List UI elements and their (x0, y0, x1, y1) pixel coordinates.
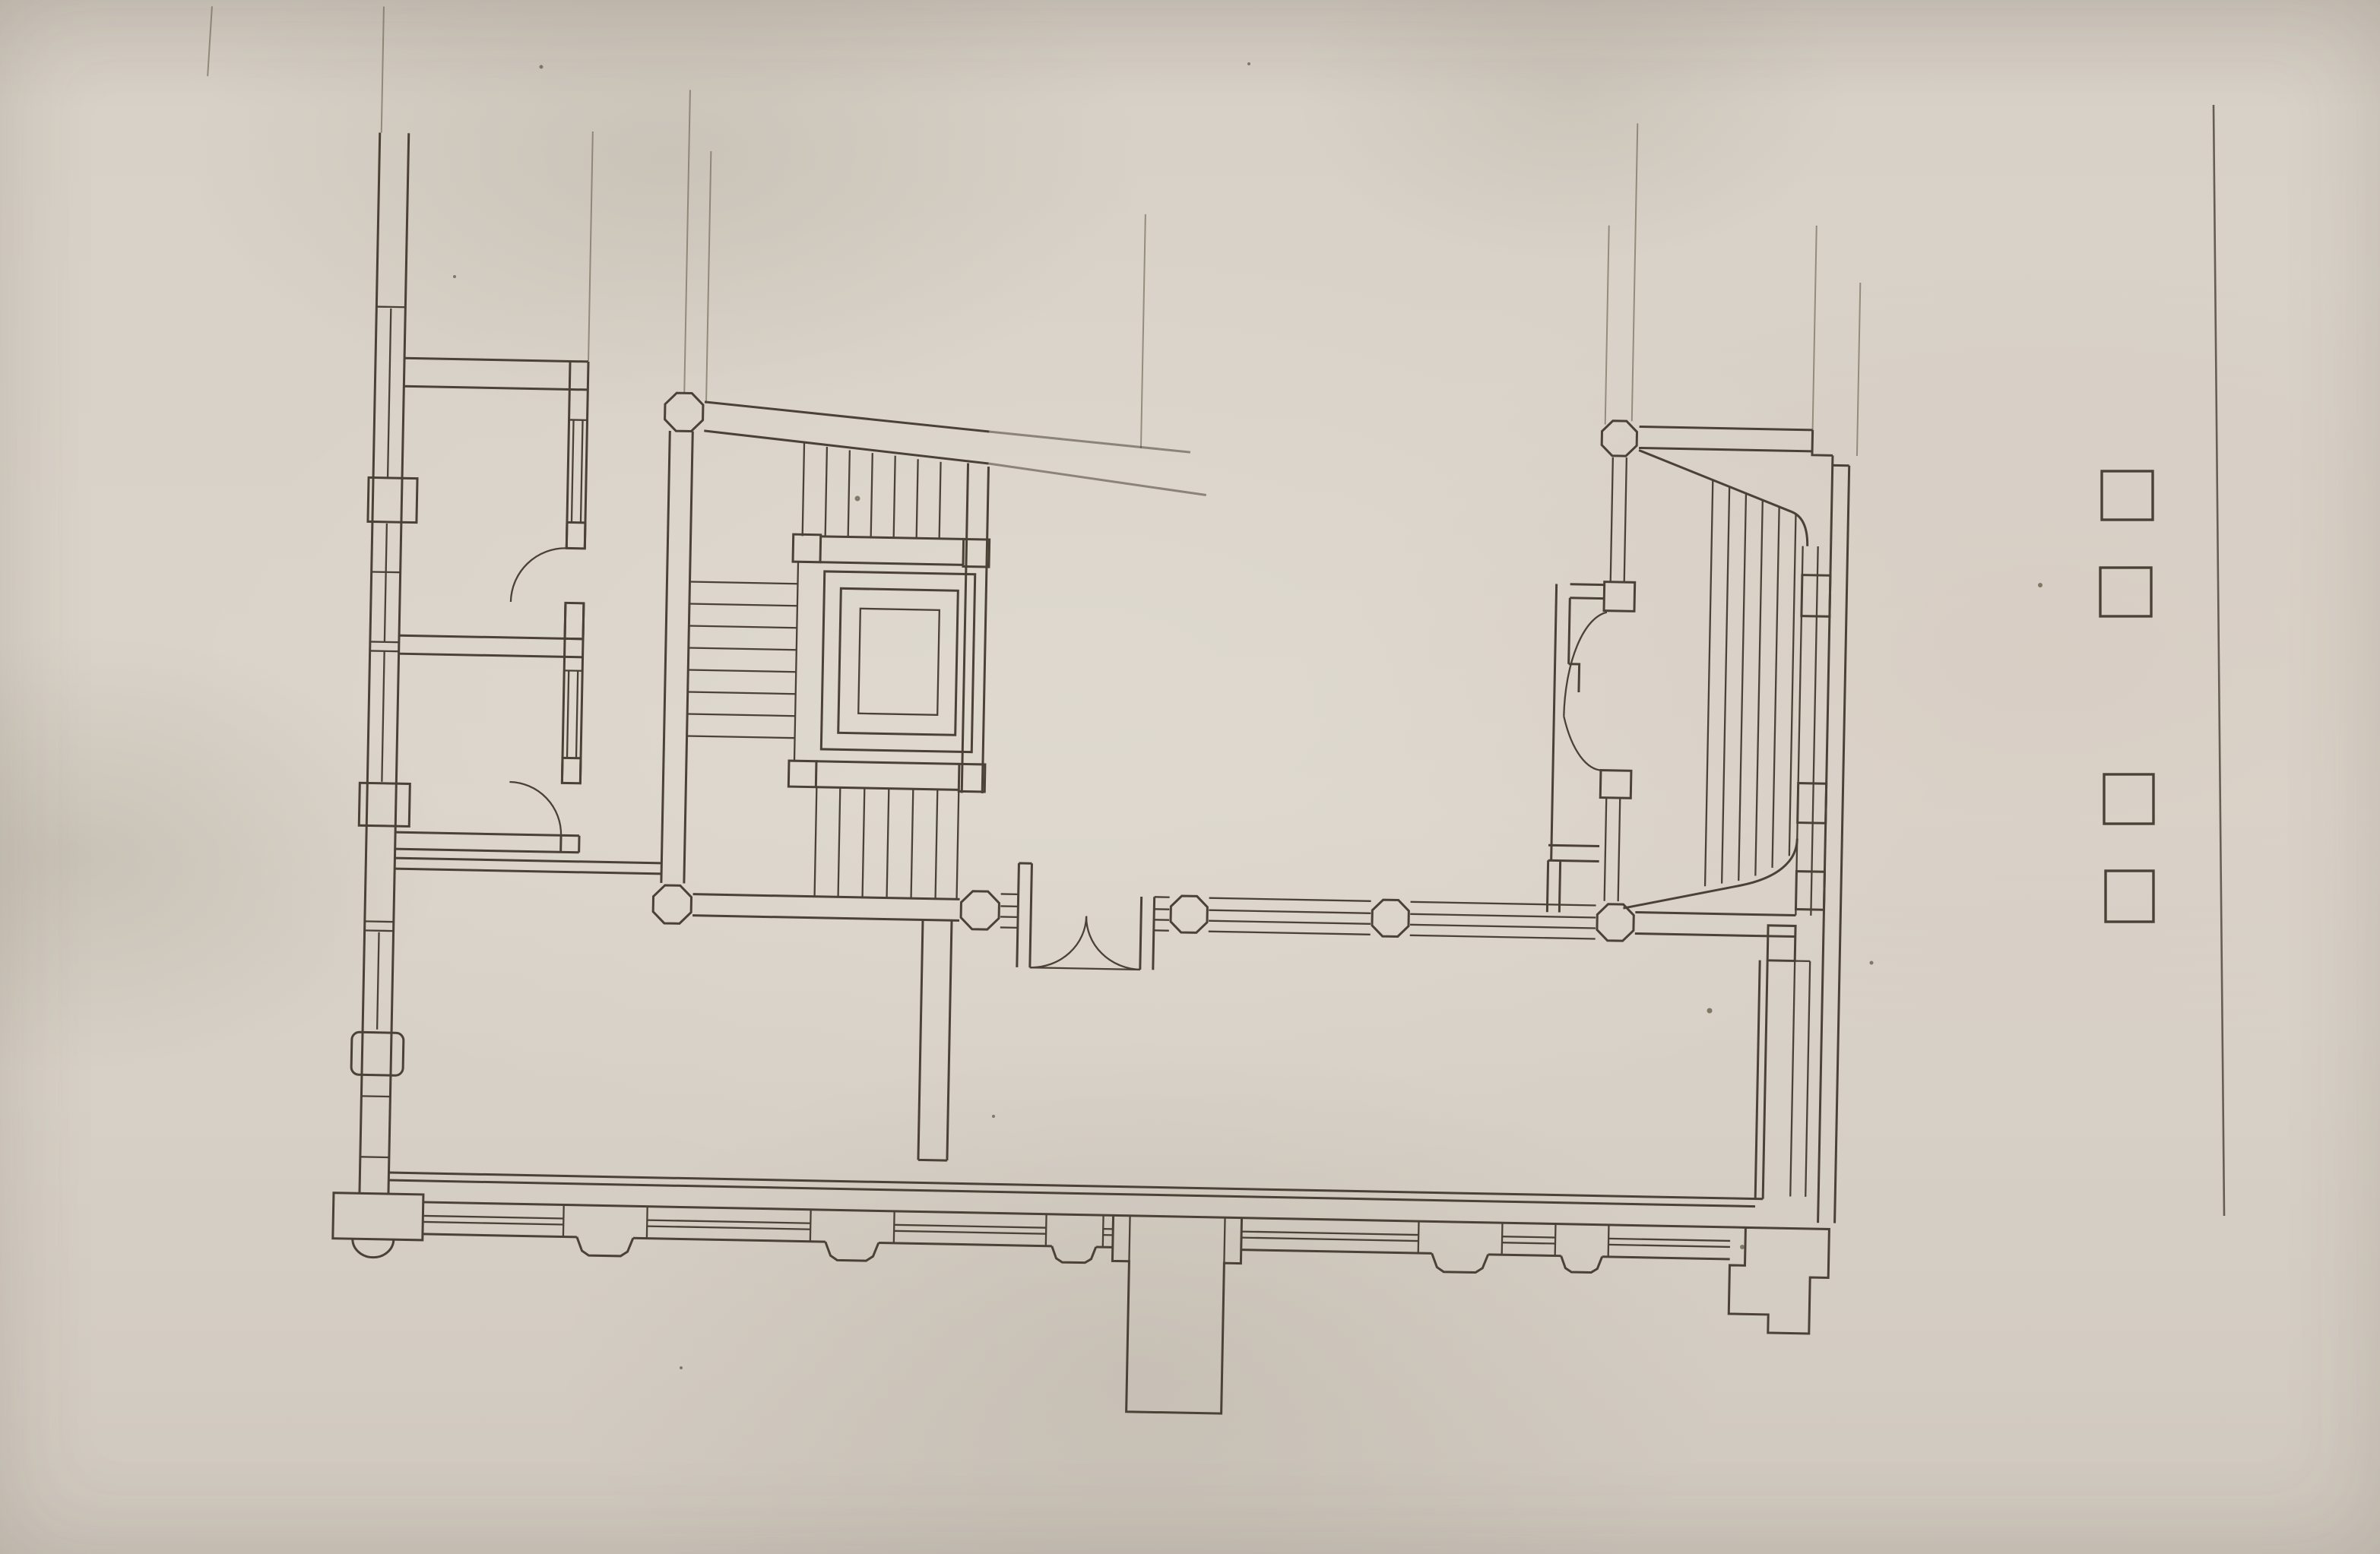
pier-base (825, 1242, 878, 1261)
pier-base (1051, 1246, 1095, 1263)
south-colonnade (330, 1172, 1830, 1426)
wall-spur (918, 919, 952, 1160)
wall-block (1767, 926, 1795, 961)
left-exterior-wall (349, 132, 424, 1194)
door-jamb-block (562, 758, 581, 783)
photo-of-floor-plan: Photograph of a hand-drafted architectur… (0, 0, 2380, 1554)
central-staircase (653, 393, 1208, 934)
corner-pier (1729, 1227, 1830, 1334)
column-square (2104, 774, 2153, 824)
newel-block (1600, 771, 1631, 799)
door-swing-arc (511, 547, 566, 603)
octagonal-column (1602, 421, 1637, 457)
landing-block (1795, 872, 1824, 910)
door-swing-arc (1563, 717, 1605, 771)
corner-pier (333, 1193, 423, 1240)
south-window-band (688, 886, 1634, 1174)
pier-base (1561, 1256, 1602, 1273)
left-rooms (395, 358, 671, 874)
octagonal-column (961, 891, 1000, 929)
column-square (2100, 568, 2151, 616)
octagonal-column (1372, 900, 1409, 937)
corner-pier-base (352, 1239, 393, 1258)
newel-block (1604, 582, 1635, 612)
pilaster-block (351, 1032, 404, 1075)
pier-base (1431, 1253, 1488, 1272)
octagonal-column (1597, 904, 1634, 942)
door-swing-arc (1030, 915, 1086, 968)
column-square (2102, 471, 2153, 520)
door-jamb-block (565, 603, 584, 638)
pier-base (576, 1237, 632, 1256)
paper-specks (453, 62, 2042, 1369)
elevator-shaft (821, 571, 975, 752)
sheet-edge-line (2214, 105, 2224, 1216)
door-swing-arc (509, 782, 562, 835)
newel-block (793, 534, 821, 562)
floor-plan-image (0, 0, 2380, 1554)
floor-plan-drawing (182, 3, 1865, 1425)
octagonal-column (1171, 896, 1208, 933)
column-square (2106, 871, 2153, 922)
underlying-sheet (2100, 105, 2224, 1216)
octagonal-column (664, 393, 703, 432)
pilaster-block (368, 477, 417, 522)
projection-lines (201, 3, 1865, 462)
newel-block (788, 761, 816, 787)
double-swing-door (1017, 863, 1155, 970)
right-staircase (1542, 419, 1850, 1223)
door-jamb-block (566, 522, 585, 548)
octagonal-column (653, 885, 692, 924)
door-swing-arc (1085, 916, 1141, 970)
